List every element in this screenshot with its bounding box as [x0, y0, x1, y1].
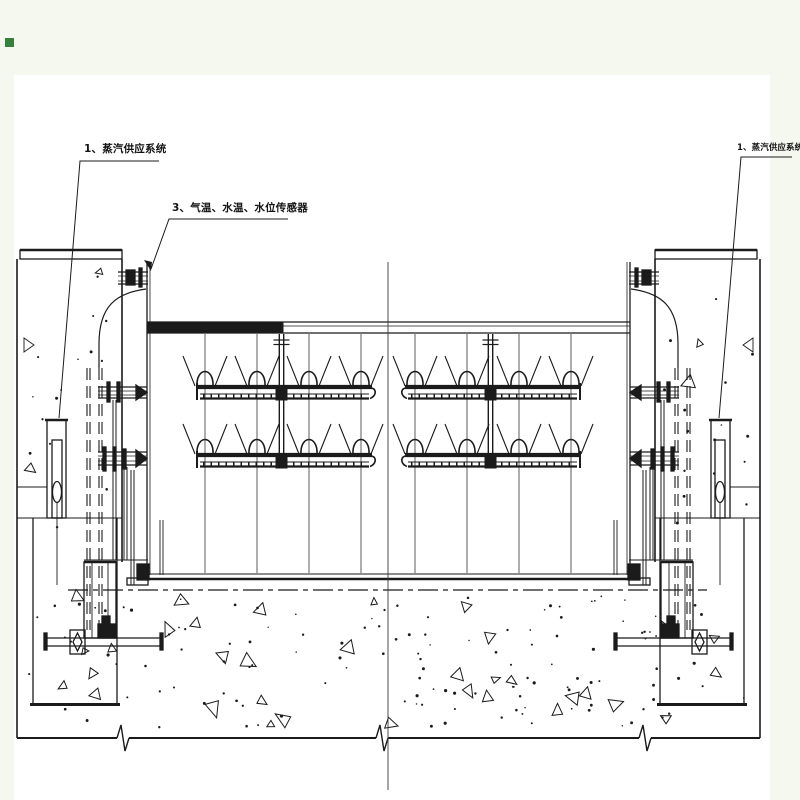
margin-top: [0, 0, 800, 75]
concrete-speck: [101, 360, 103, 362]
concrete-speck: [715, 298, 717, 300]
concrete-speck: [295, 651, 296, 652]
concrete-speck: [418, 677, 421, 680]
concrete-speck: [338, 656, 341, 659]
concrete-speck: [419, 658, 421, 660]
concrete-speck: [544, 609, 546, 611]
drawing-sheet: 1、蒸汽供应系统 1、蒸汽供应系统 3、气温、水温、水位传感器: [0, 0, 800, 800]
concrete-speck: [424, 633, 426, 635]
concrete-speck: [694, 604, 697, 607]
concrete-speck: [433, 688, 435, 690]
concrete-speck: [144, 665, 147, 668]
concrete-speck: [340, 642, 343, 645]
concrete-speck: [588, 709, 591, 712]
concrete-speck: [501, 716, 503, 718]
concrete-speck: [86, 719, 89, 722]
concrete-speck: [751, 353, 754, 356]
concrete-speck: [642, 708, 644, 710]
concrete-speck: [159, 690, 161, 692]
concrete-speck: [624, 599, 625, 600]
concrete-speck: [594, 600, 596, 602]
concrete-speck: [643, 631, 645, 633]
concrete-speck: [126, 696, 128, 698]
concrete-speck: [90, 350, 93, 353]
concrete-speck: [591, 600, 593, 602]
concrete-speck: [364, 627, 366, 629]
concrete-speck: [622, 725, 624, 727]
concrete-speck: [454, 708, 456, 710]
concrete-speck: [444, 689, 447, 692]
concrete-speck: [242, 705, 244, 707]
concrete-speck: [744, 461, 746, 463]
concrete-speck: [430, 725, 433, 728]
concrete-speck: [592, 648, 595, 651]
pipe-tee-joint: [485, 386, 496, 400]
concrete-speck: [746, 435, 749, 438]
pipe-tee-joint: [276, 454, 287, 468]
concrete-speck: [652, 684, 655, 687]
concrete-speck: [78, 603, 81, 606]
concrete-speck: [567, 686, 569, 688]
label-steam-supply-right: 1、蒸汽供应系统: [737, 142, 800, 153]
concrete-speck: [427, 616, 429, 618]
concrete-speck: [416, 703, 417, 704]
concrete-speck: [245, 725, 248, 728]
concrete-speck: [622, 620, 624, 622]
concrete-speck: [560, 616, 563, 619]
concrete-speck: [649, 631, 651, 633]
concrete-speck: [184, 628, 186, 630]
concrete-speck: [371, 618, 372, 619]
concrete-speck: [702, 685, 704, 687]
concrete-speck: [235, 699, 238, 702]
concrete-speck: [524, 707, 526, 709]
concrete-speck: [55, 397, 58, 400]
concrete-speck: [652, 698, 655, 701]
concrete-speck: [383, 609, 385, 611]
concrete-speck: [180, 598, 182, 600]
concrete-speck: [531, 722, 533, 724]
concrete-speck: [408, 633, 411, 636]
concrete-speck: [107, 653, 110, 656]
concrete-speck: [123, 606, 125, 608]
concrete-speck: [29, 452, 32, 455]
concrete-speck: [158, 726, 160, 728]
concrete-speck: [96, 276, 98, 278]
concrete-speck: [556, 635, 559, 638]
concrete-speck: [417, 653, 419, 655]
concrete-speck: [590, 704, 593, 707]
concrete-speck: [346, 667, 348, 669]
steam-header: [148, 323, 283, 333]
concrete-speck: [745, 503, 747, 505]
concrete-speck: [576, 677, 579, 680]
concrete-speck: [571, 708, 573, 710]
concrete-speck: [529, 629, 531, 631]
concrete-speck: [249, 640, 252, 643]
concrete-speck: [41, 418, 43, 420]
concrete-speck: [378, 625, 380, 627]
concrete-speck: [641, 632, 643, 634]
concrete-speck: [396, 605, 398, 607]
pipe-tee-joint: [276, 386, 287, 400]
concrete-speck: [130, 609, 133, 612]
concrete-speck: [700, 613, 703, 616]
green-marker: [5, 38, 14, 47]
concrete-speck: [54, 605, 57, 608]
concrete-speck: [105, 320, 107, 322]
concrete-speck: [512, 686, 514, 688]
concrete-speck: [630, 721, 633, 724]
concrete-speck: [36, 616, 38, 618]
concrete-speck: [551, 664, 553, 666]
concrete-speck: [721, 424, 723, 426]
concrete-speck: [668, 712, 670, 714]
concrete-speck: [229, 643, 231, 645]
concrete-speck: [453, 692, 456, 695]
concrete-speck: [474, 692, 476, 694]
concrete-speck: [533, 681, 536, 684]
concrete-speck: [693, 662, 696, 665]
concrete-speck: [105, 488, 108, 491]
pipe-fitting: [98, 624, 116, 638]
concrete-speck: [178, 627, 180, 629]
concrete-speck: [37, 356, 39, 358]
concrete-speck: [416, 694, 419, 697]
concrete-speck: [382, 652, 385, 655]
concrete-speck: [655, 616, 657, 618]
concrete-speck: [92, 315, 94, 317]
concrete-speck: [302, 634, 304, 636]
concrete-speck: [94, 607, 96, 609]
concrete-speck: [559, 606, 561, 608]
pipe-tee-joint: [485, 454, 496, 468]
concrete-speck: [32, 396, 34, 398]
concrete-speck: [495, 651, 498, 654]
section-drawing: 1、蒸汽供应系统 1、蒸汽供应系统 3、气温、水温、水位传感器: [0, 0, 800, 800]
margin-right: [770, 0, 800, 800]
concrete-speck: [173, 686, 175, 688]
concrete-speck: [257, 724, 259, 726]
concrete-speck: [655, 635, 657, 637]
concrete-speck: [510, 664, 512, 666]
concrete-speck: [526, 677, 528, 679]
concrete-speck: [724, 381, 727, 384]
concrete-speck: [104, 609, 107, 612]
margin-left: [0, 0, 14, 800]
concrete-speck: [519, 695, 522, 698]
label-sensors: 3、气温、水温、水位传感器: [172, 201, 308, 214]
concrete-speck: [549, 604, 552, 607]
concrete-speck: [531, 644, 533, 646]
concrete-speck: [590, 681, 593, 684]
concrete-speck: [683, 409, 686, 412]
concrete-speck: [600, 596, 602, 598]
concrete-speck: [467, 597, 470, 600]
concrete-speck: [180, 648, 182, 650]
concrete-speck: [324, 682, 326, 684]
concrete-speck: [444, 722, 447, 725]
concrete-speck: [422, 667, 425, 670]
concrete-speck: [683, 470, 685, 472]
concrete-speck: [223, 692, 225, 694]
concrete-speck: [267, 627, 268, 628]
concrete-speck: [655, 667, 658, 670]
concrete-speck: [234, 604, 237, 607]
concrete-speck: [506, 629, 508, 631]
concrete-speck: [598, 680, 600, 682]
label-steam-supply-left: 1、蒸汽供应系统: [84, 142, 167, 155]
concrete-speck: [395, 638, 398, 641]
concrete-speck: [568, 688, 571, 691]
concrete-speck: [683, 495, 686, 498]
concrete-speck: [49, 443, 51, 445]
concrete-speck: [77, 359, 79, 361]
concrete-speck: [515, 709, 518, 712]
concrete-speck: [295, 613, 297, 615]
concrete-speck: [429, 644, 431, 646]
concrete-speck: [421, 704, 423, 706]
concrete-speck: [28, 673, 30, 675]
concrete-speck: [64, 708, 67, 711]
concrete-speck: [521, 713, 523, 715]
concrete-speck: [404, 700, 406, 702]
concrete-speck: [677, 677, 680, 680]
concrete-speck: [468, 640, 469, 641]
concrete-speck: [669, 339, 672, 342]
